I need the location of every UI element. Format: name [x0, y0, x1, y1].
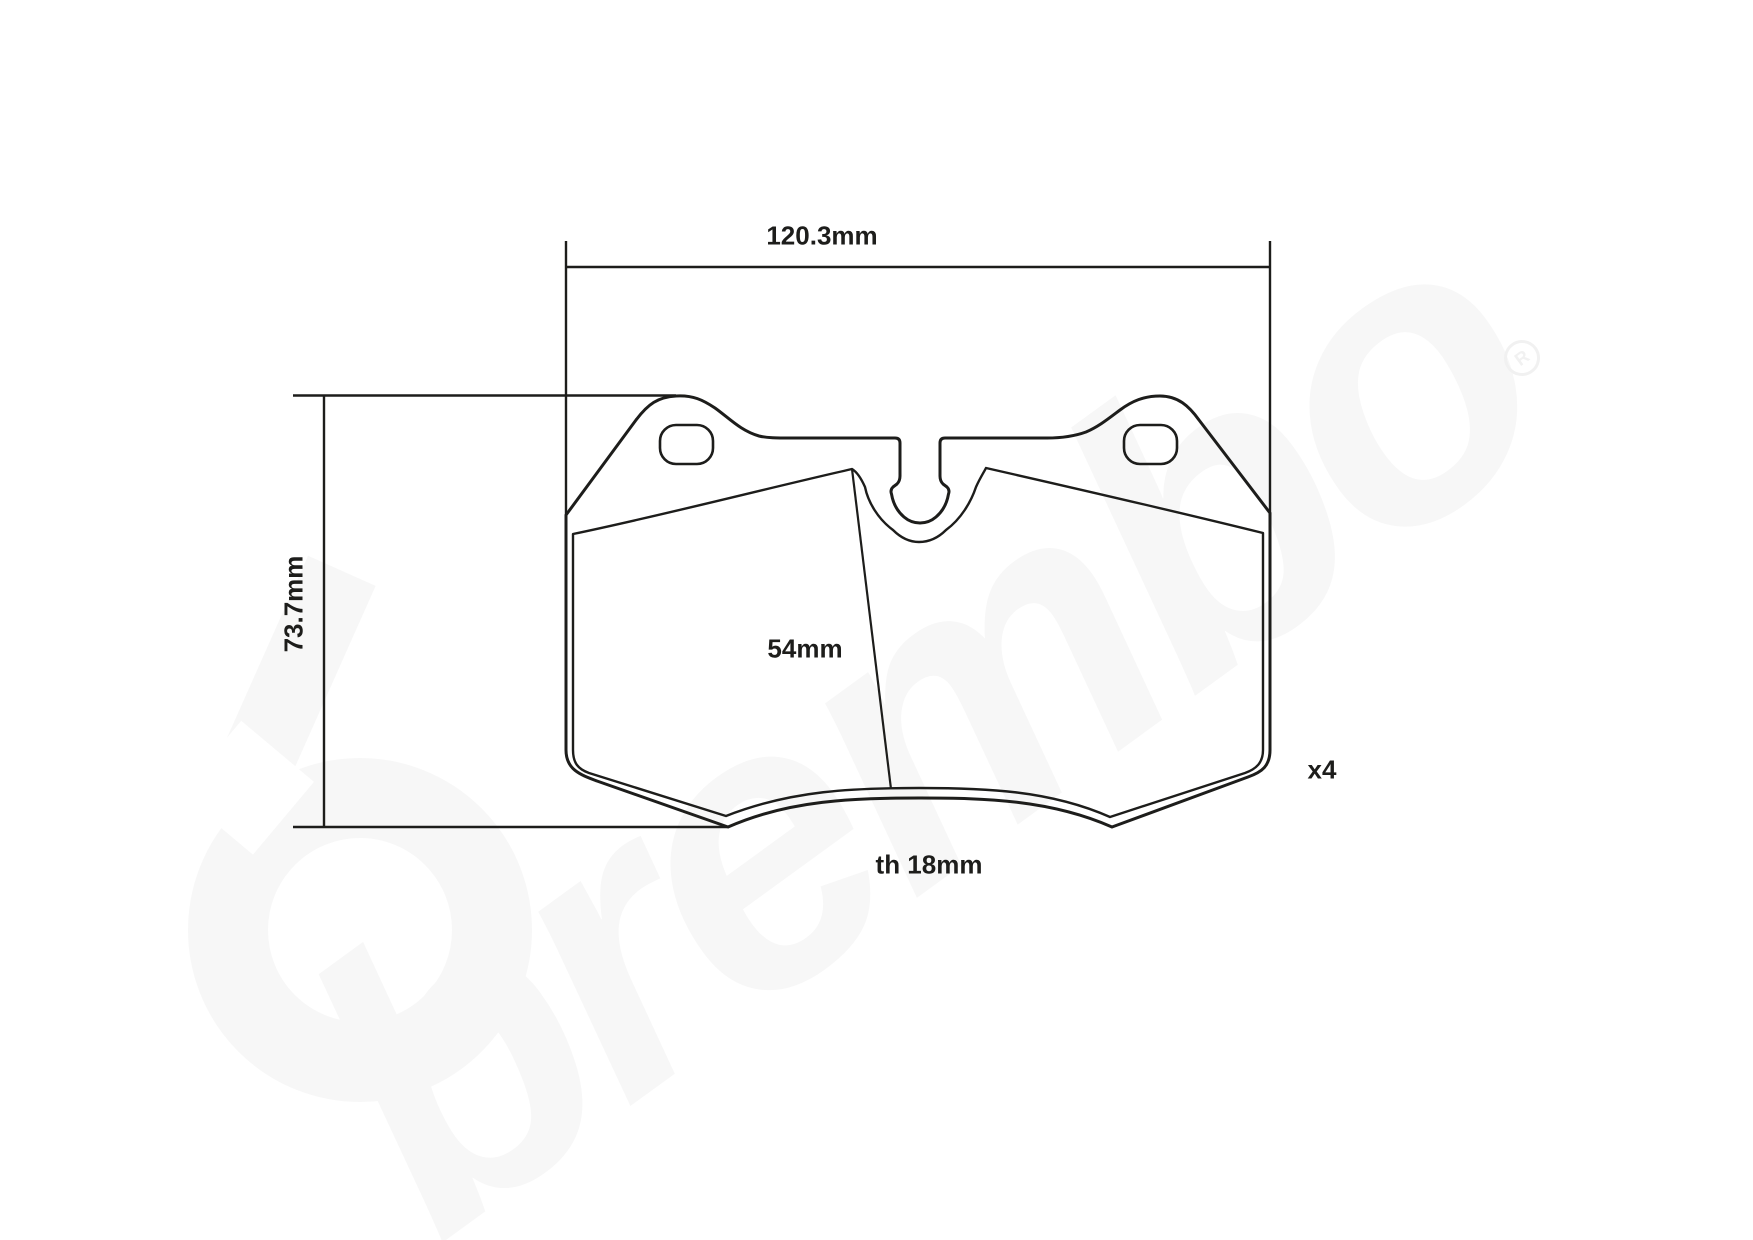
thickness-label: th 18mm: [876, 850, 983, 881]
drawing-canvas: brembo R 120.3mm 73.7mm 54mm th 18mm x4: [0, 0, 1753, 1240]
friction-material-outline: [573, 468, 1263, 817]
width-dimension-label: 120.3mm: [766, 221, 877, 252]
left-mounting-hole: [660, 425, 713, 464]
dimension-lines: [293, 241, 1270, 827]
friction-height-line: [852, 469, 891, 789]
height-dimension-label: 73.7mm: [279, 556, 310, 653]
friction-height-label: 54mm: [767, 634, 842, 665]
brake-pad-drawing: [0, 0, 1753, 1240]
backplate-outline: [566, 396, 1270, 827]
quantity-label: x4: [1308, 755, 1337, 786]
right-mounting-hole: [1124, 425, 1177, 464]
